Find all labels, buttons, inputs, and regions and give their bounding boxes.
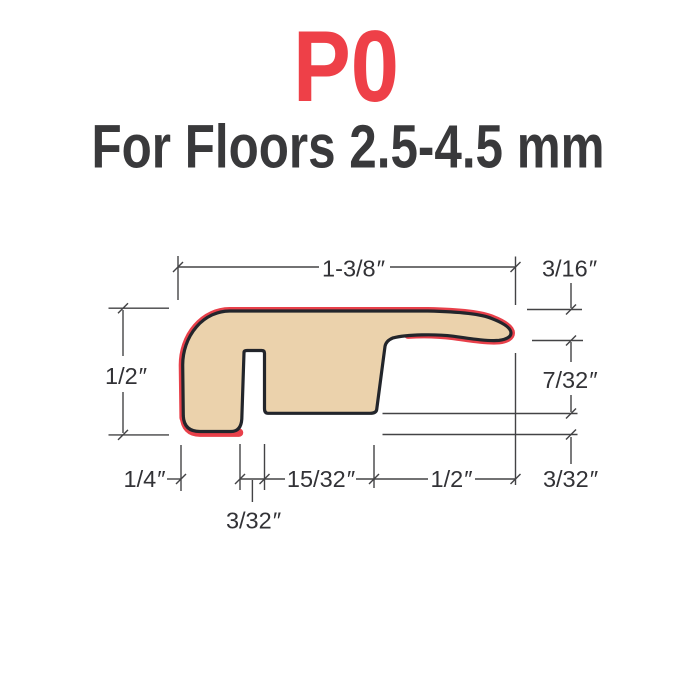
svg-text:3/16″: 3/16″	[542, 256, 597, 282]
svg-text:1/4″: 1/4″	[124, 466, 166, 492]
svg-text:P0: P0	[293, 11, 399, 123]
svg-text:3/32″: 3/32″	[543, 466, 598, 492]
svg-text:1/2″: 1/2″	[105, 363, 147, 389]
svg-text:1/2″: 1/2″	[431, 466, 473, 492]
svg-text:3/32″: 3/32″	[226, 508, 281, 534]
svg-text:For Floors 2.5-4.5 mm: For Floors 2.5-4.5 mm	[92, 113, 605, 182]
svg-text:1-3/8″: 1-3/8″	[322, 256, 385, 282]
svg-text:15/32″: 15/32″	[287, 466, 355, 492]
svg-text:7/32″: 7/32″	[542, 367, 597, 393]
